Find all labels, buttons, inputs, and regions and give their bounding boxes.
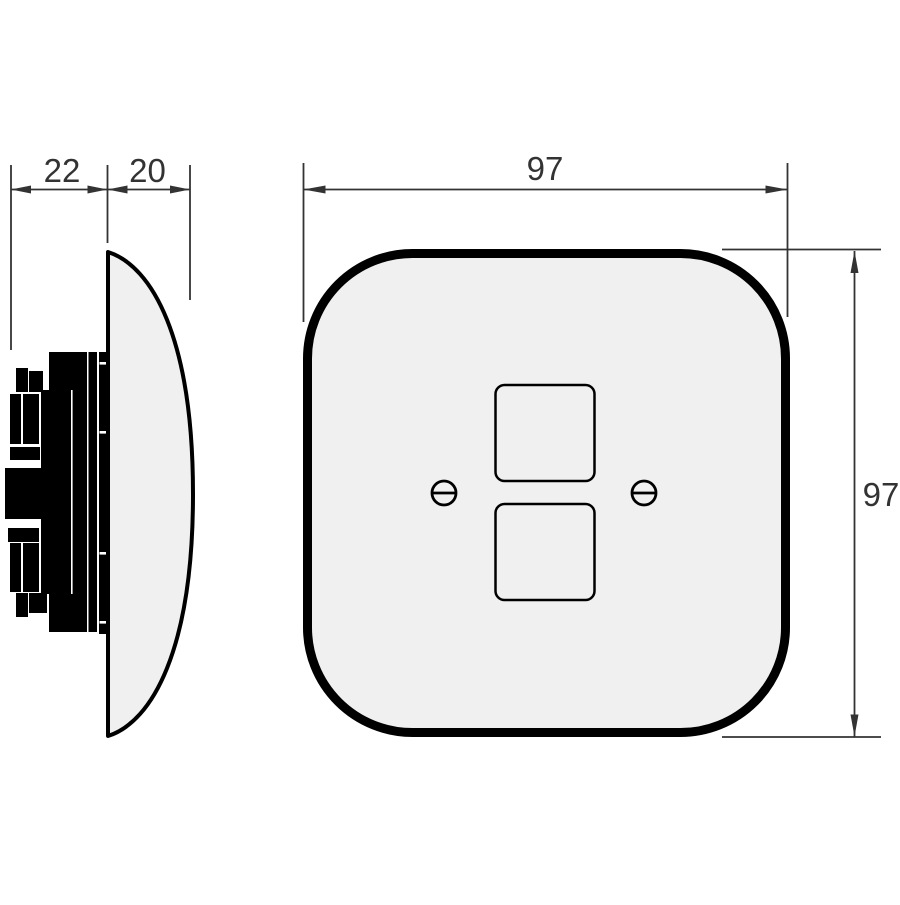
mechanism-part — [29, 371, 43, 392]
mechanism-part — [23, 394, 39, 444]
dimension-label-plate-depth: 20 — [129, 152, 166, 189]
arrow-left-icon — [304, 186, 326, 194]
mechanism-part — [89, 352, 98, 632]
arrow-up-icon — [851, 251, 859, 273]
mechanism-part — [8, 528, 39, 542]
dimension-label-plate-width: 97 — [527, 150, 564, 187]
mechanism-part — [5, 468, 43, 519]
cover-plate-profile — [108, 252, 193, 736]
mechanism-part — [49, 352, 87, 632]
side-view — [5, 252, 193, 736]
arrow-left-icon — [11, 186, 31, 194]
dimension-label-plate-height: 97 — [863, 476, 900, 513]
cover-plate-front — [308, 254, 786, 733]
dimension-label-mechanism-depth: 22 — [44, 152, 81, 189]
mechanism-part — [23, 543, 39, 592]
arrow-right-icon — [88, 186, 108, 194]
mechanism-notch — [100, 362, 108, 365]
technical-drawing: 22 20 97 97 — [0, 0, 900, 900]
mechanism-part — [99, 352, 107, 634]
drawing-canvas: 22 20 97 97 — [0, 0, 900, 900]
mechanism-part — [10, 447, 40, 460]
mechanism-part — [10, 543, 21, 592]
mechanism-part — [10, 394, 21, 444]
mechanism-notch — [100, 431, 108, 434]
mechanism-part — [16, 593, 28, 617]
socket-mechanism-side — [5, 352, 107, 634]
arrow-right-icon — [170, 186, 190, 194]
arrow-down-icon — [851, 715, 859, 737]
mechanism-notch — [100, 621, 108, 624]
mechanism-part — [16, 368, 28, 392]
arrow-right-icon — [766, 186, 788, 194]
mechanism-seam — [71, 390, 73, 594]
arrow-left-icon — [108, 186, 128, 194]
dimension-mechanism-depth: 22 — [11, 152, 108, 350]
mechanism-notch — [100, 552, 108, 555]
mechanism-part — [29, 593, 47, 613]
front-view — [308, 254, 786, 733]
